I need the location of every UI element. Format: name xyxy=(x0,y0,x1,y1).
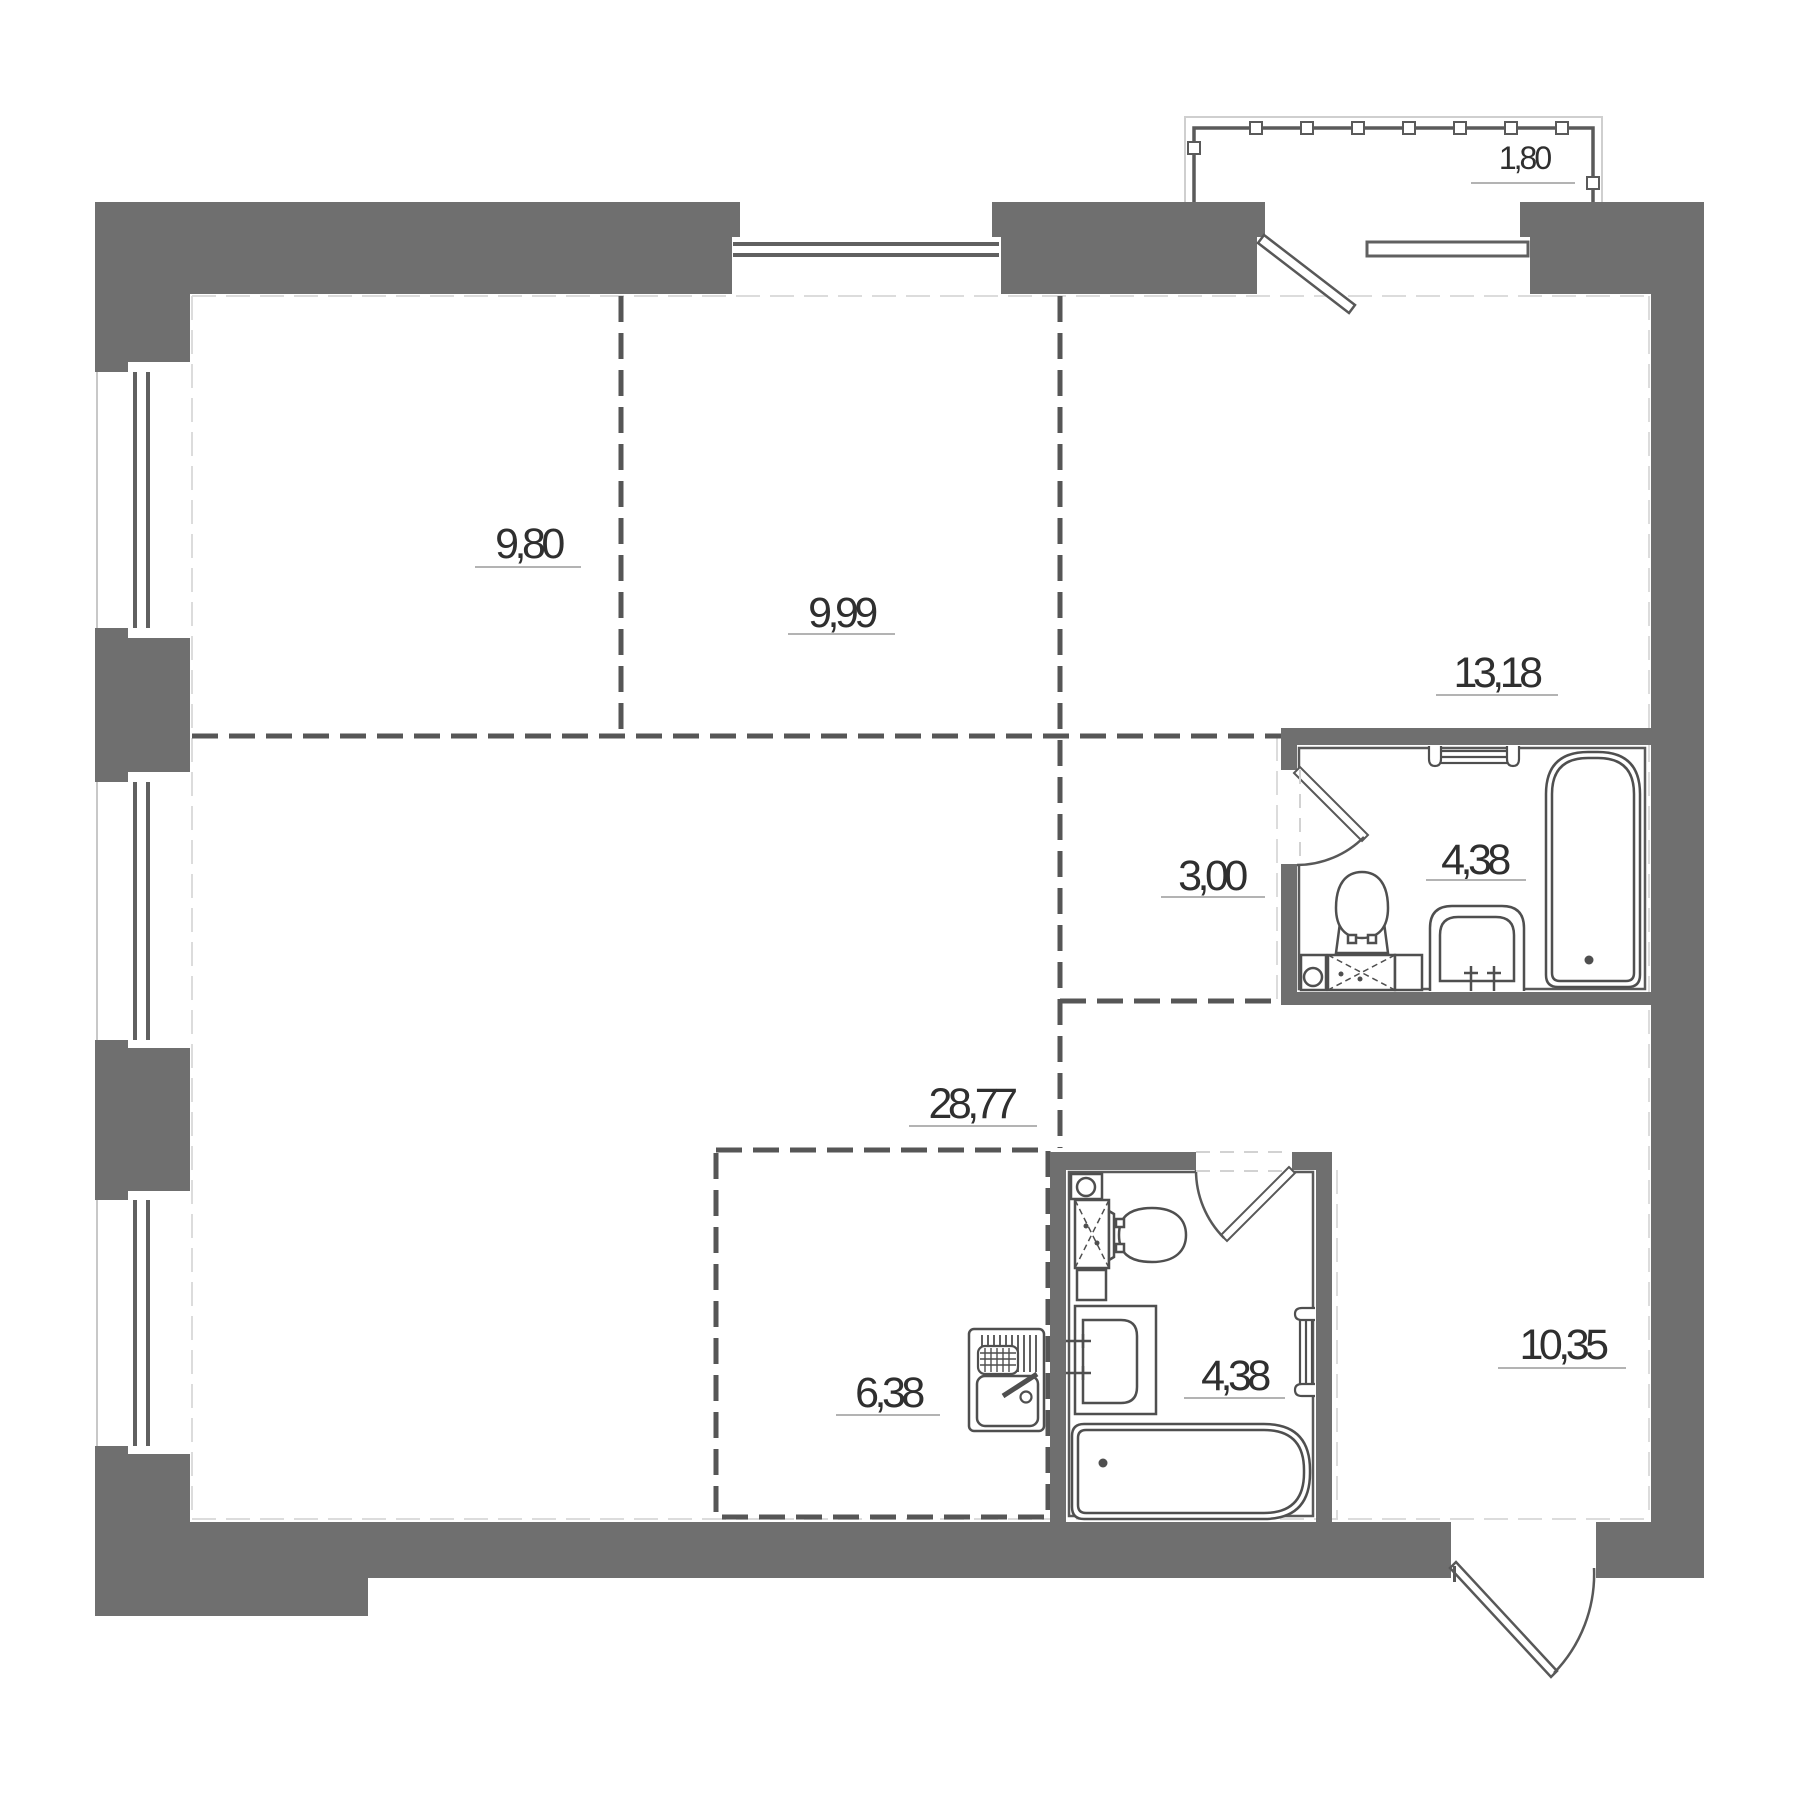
svg-text:3,00: 3,00 xyxy=(1178,852,1247,900)
svg-text:4,38: 4,38 xyxy=(1201,1352,1270,1400)
svg-text:4,38: 4,38 xyxy=(1441,836,1510,884)
svg-text:1,80: 1,80 xyxy=(1499,140,1551,176)
svg-text:6,38: 6,38 xyxy=(855,1369,924,1417)
svg-text:9,80: 9,80 xyxy=(495,520,564,568)
svg-text:28,77: 28,77 xyxy=(928,1080,1016,1128)
svg-text:9,99: 9,99 xyxy=(808,589,876,637)
svg-text:13,18: 13,18 xyxy=(1453,649,1542,697)
svg-text:10,35: 10,35 xyxy=(1519,1321,1608,1369)
